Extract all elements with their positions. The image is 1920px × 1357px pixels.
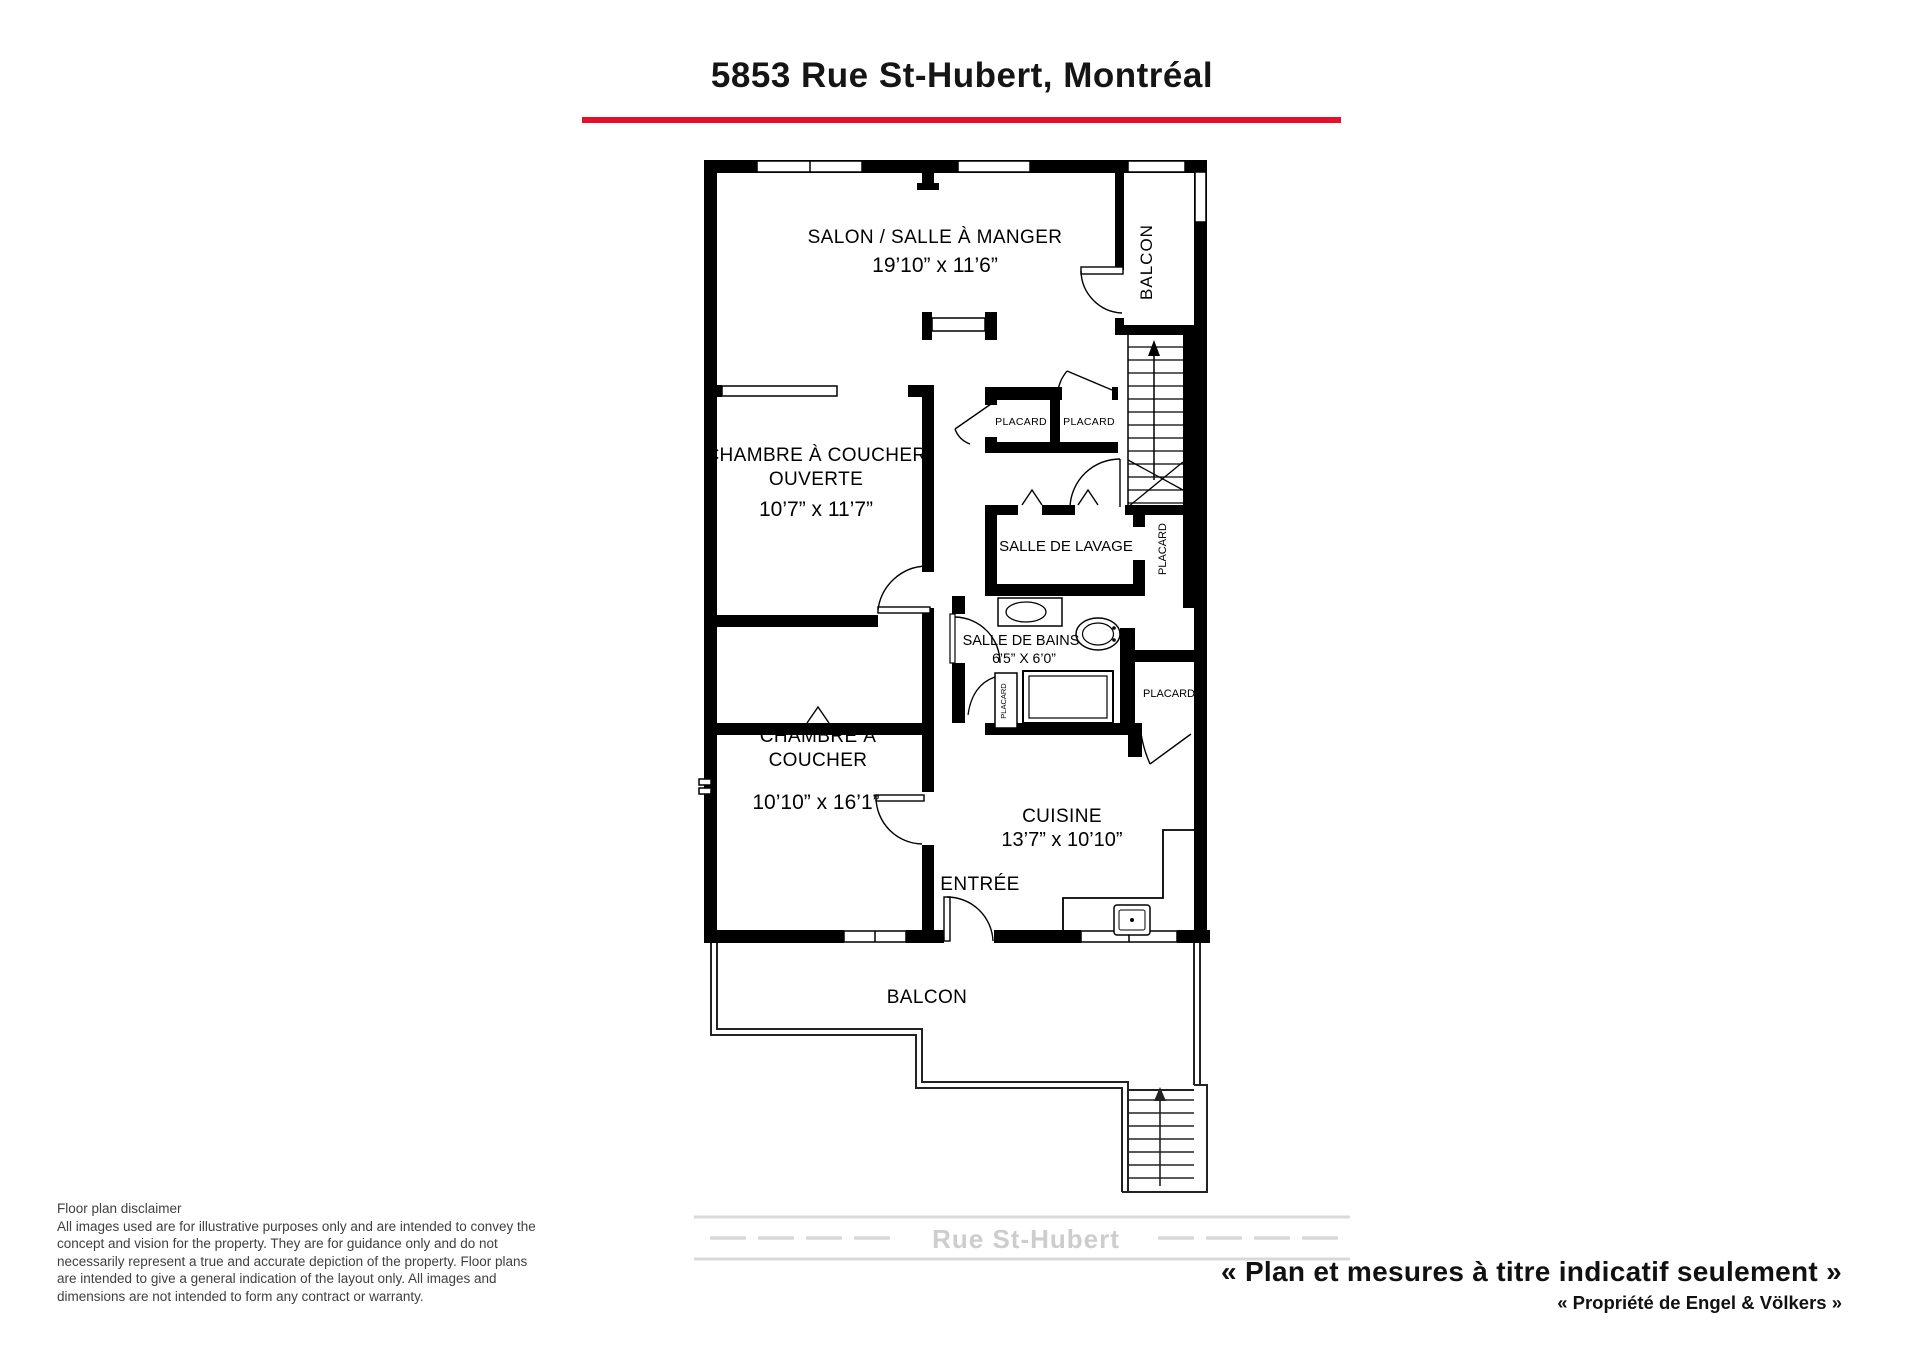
label-placard-bains-petit: PLACARD — [999, 683, 1008, 719]
dims-salon: 19’10” x 11’6” — [872, 254, 998, 277]
footer-notes: « Plan et mesures à titre indicatif seul… — [1221, 1256, 1842, 1314]
note-indicative: « Plan et mesures à titre indicatif seul… — [1221, 1256, 1842, 1288]
interior-stairs — [1128, 335, 1183, 507]
label-salle-de-bains: SALLE DE BAINS — [963, 633, 1080, 649]
dims-salle-de-bains: 6’5” X 6’0” — [992, 650, 1056, 666]
label-placard-lavage: PLACARD — [1157, 523, 1169, 575]
label-placard-hall-right: PLACARD — [1063, 416, 1115, 428]
floor-plan-page: 5853 Rue St-Hubert, Montréal — [0, 0, 1920, 1357]
balcony-outline — [711, 943, 1207, 1192]
disclaimer: Floor plan disclaimer All images used ar… — [57, 1200, 539, 1305]
disclaimer-title: Floor plan disclaimer — [57, 1200, 539, 1218]
label-chambre-ouverte-1: CHAMBRE À COUCHER — [705, 445, 926, 466]
label-chambre-1: CHAMBRE À — [760, 726, 877, 747]
label-salon: SALON / SALLE À MANGER — [808, 227, 1063, 248]
note-brand: « Propriété de Engel & Völkers » — [1221, 1292, 1842, 1314]
street-label: Rue St-Hubert — [932, 1224, 1120, 1254]
walls — [704, 160, 1210, 943]
label-entree: ENTRÉE — [940, 874, 1019, 895]
stairs-up-arrow — [1148, 340, 1160, 356]
label-placard-cuisine: PLACARD — [1143, 688, 1195, 700]
exterior-stairs — [1128, 1087, 1194, 1186]
label-chambre-2: COUCHER — [769, 750, 868, 771]
label-chambre-ouverte-2: OUVERTE — [769, 469, 863, 490]
dims-chambre: 10’10” x 16’1” — [752, 791, 879, 814]
label-salle-de-lavage: SALLE DE LAVAGE — [999, 538, 1133, 555]
floor-plan-drawing: Rue St-Hubert SALON / SALLE À MANGER 19’… — [0, 0, 1920, 1357]
dims-cuisine: 13’7” x 10’10” — [1001, 829, 1122, 851]
dims-chambre-ouverte: 10’7” x 11’7” — [759, 498, 873, 521]
disclaimer-body: All images used are for illustrative pur… — [57, 1218, 539, 1306]
label-balcon-bottom: BALCON — [887, 987, 968, 1008]
label-cuisine: CUISINE — [1022, 806, 1102, 827]
label-balcon-top: BALCON — [1137, 224, 1156, 300]
label-placard-hall-left: PLACARD — [995, 416, 1047, 428]
